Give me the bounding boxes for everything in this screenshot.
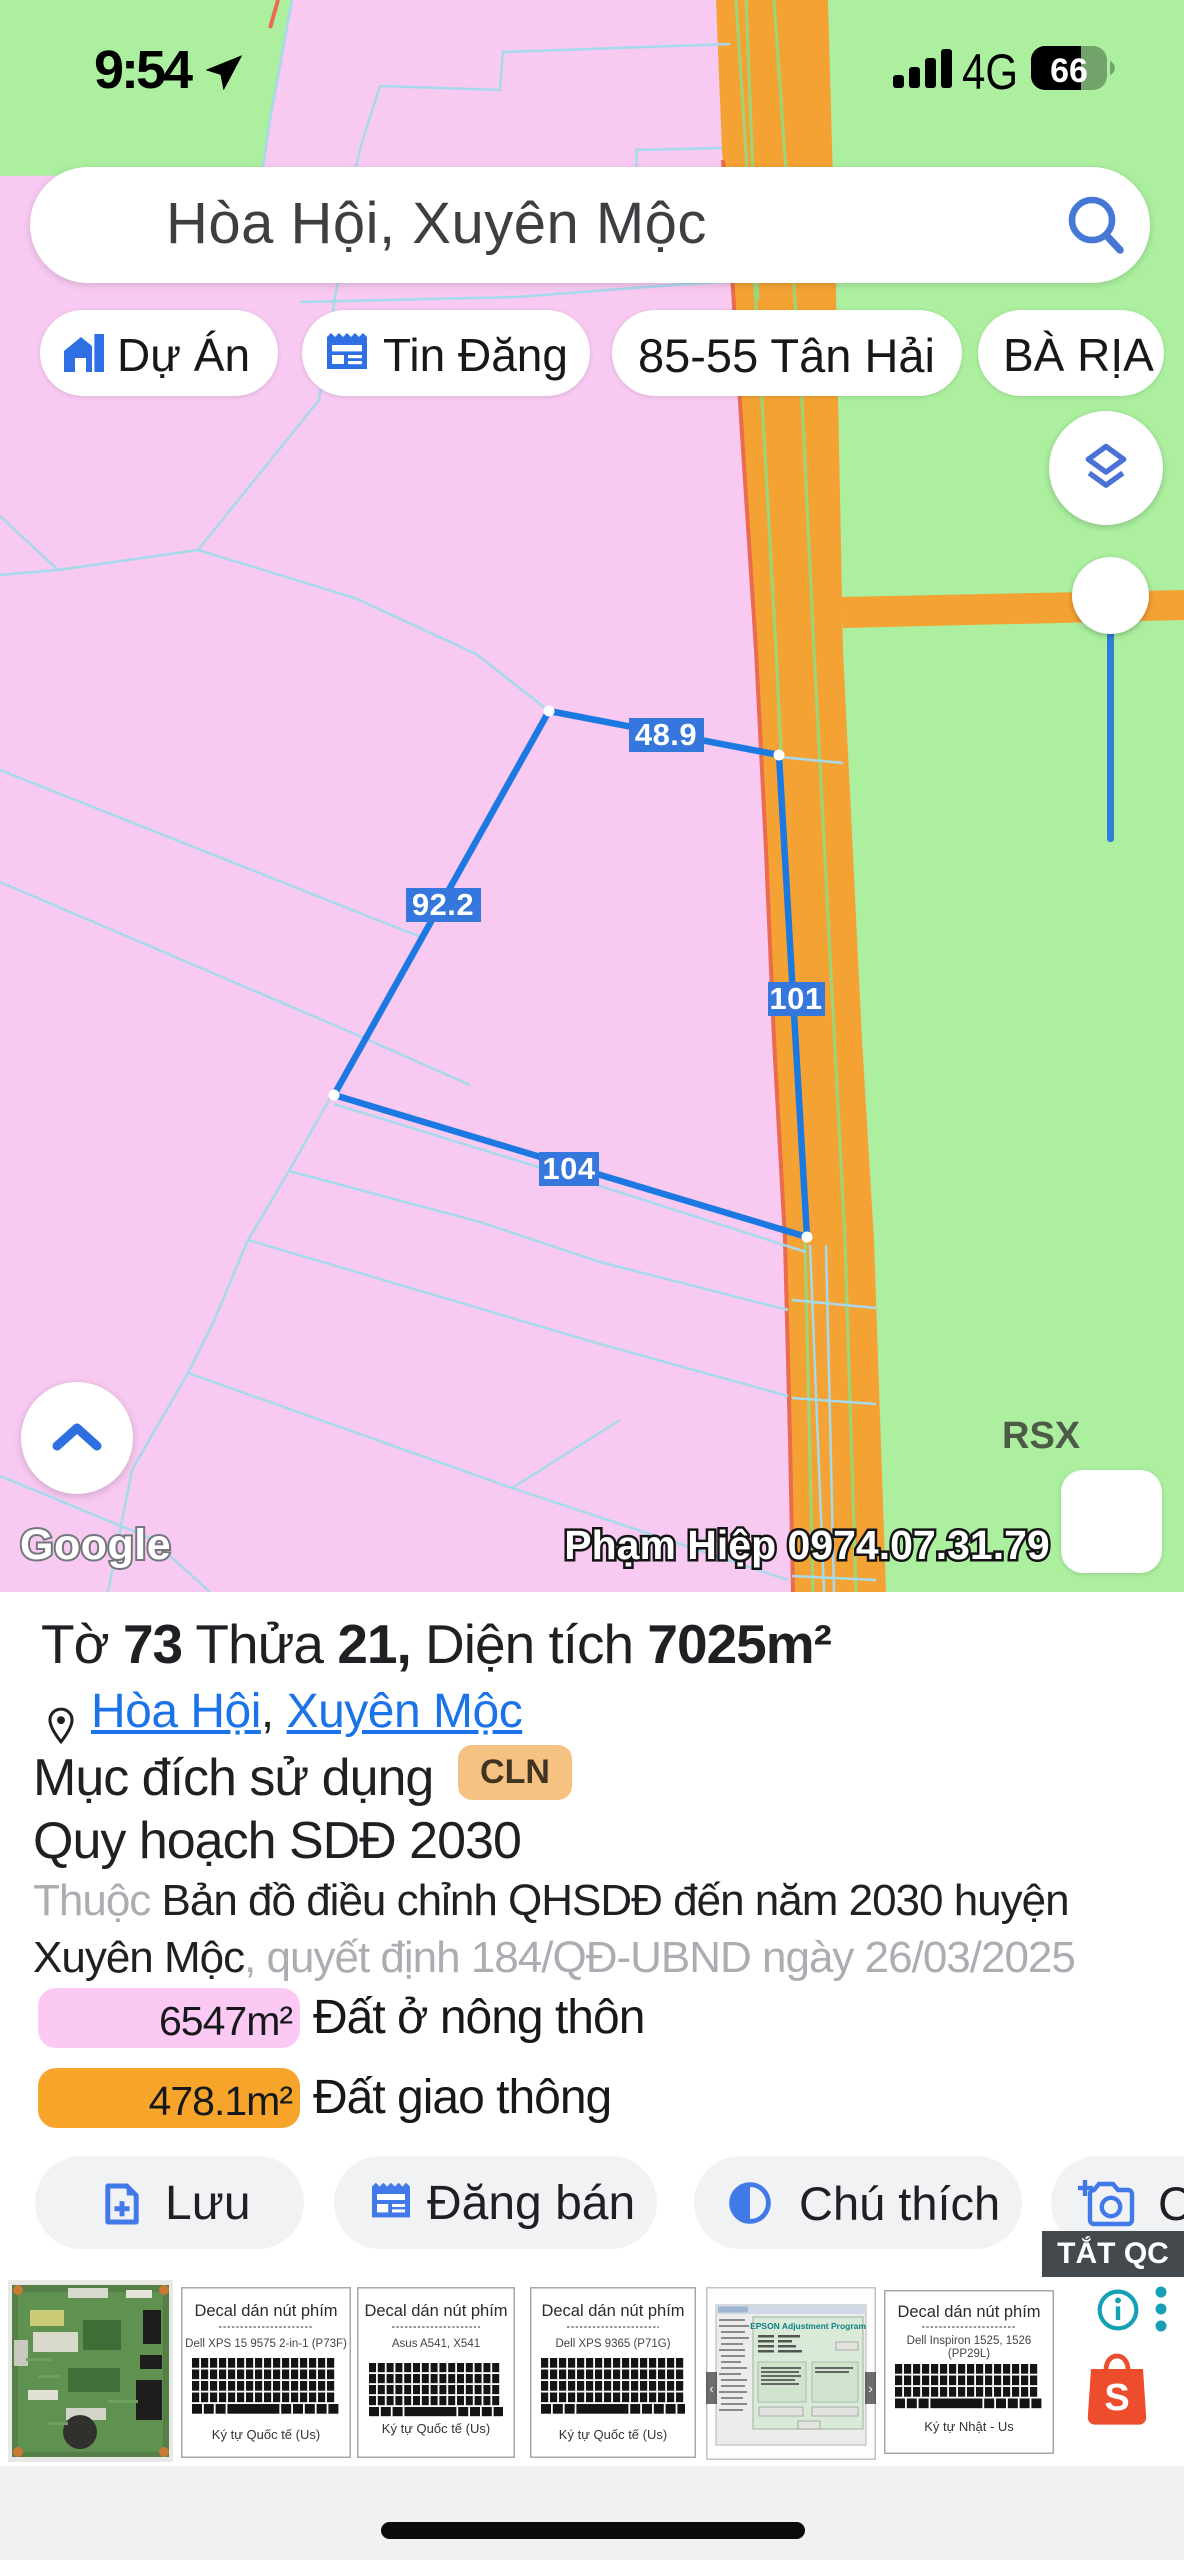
svg-text:‹: ‹ bbox=[709, 2381, 713, 2396]
svg-text:101: 101 bbox=[769, 981, 822, 1016]
svg-text:›: › bbox=[868, 2381, 872, 2396]
svg-text:Phạm Hiệp 0974.07.31.79: Phạm Hiệp 0974.07.31.79 bbox=[564, 1522, 1049, 1568]
svg-text:Decal dán nút phím: Decal dán nút phím bbox=[541, 2302, 684, 2320]
svg-text:92.2: 92.2 bbox=[412, 887, 474, 922]
svg-text:S: S bbox=[1104, 2377, 1129, 2419]
svg-text:Ký tự Quốc tế (Us): Ký tự Quốc tế (Us) bbox=[212, 2427, 320, 2442]
svg-text:Google: Google bbox=[20, 1521, 171, 1569]
svg-text:Ký tự Nhật - Us: Ký tự Nhật - Us bbox=[924, 2419, 1014, 2434]
svg-text:104: 104 bbox=[542, 1151, 595, 1186]
svg-text:Dell Inspiron 1525, 1526: Dell Inspiron 1525, 1526 bbox=[907, 2335, 1032, 2347]
svg-text:48.9: 48.9 bbox=[635, 717, 697, 752]
svg-text:RSX: RSX bbox=[1002, 1415, 1081, 1457]
svg-text:Decal dán nút phím: Decal dán nút phím bbox=[194, 2302, 337, 2320]
svg-text:4G: 4G bbox=[962, 44, 1018, 94]
svg-text:Decal dán nút phím: Decal dán nút phím bbox=[897, 2303, 1040, 2321]
svg-text:Ký tự Quốc tế (Us): Ký tự Quốc tế (Us) bbox=[559, 2427, 667, 2442]
svg-text:EPSON Adjustment Program: EPSON Adjustment Program bbox=[750, 2321, 866, 2331]
svg-text:66: 66 bbox=[1050, 52, 1088, 90]
svg-text:Decal dán nút phím: Decal dán nút phím bbox=[364, 2302, 507, 2320]
svg-text:Dell XPS 15 9575 2-in-1 (P73F): Dell XPS 15 9575 2-in-1 (P73F) bbox=[185, 2338, 347, 2350]
svg-text:(PP29L): (PP29L) bbox=[948, 2348, 990, 2360]
svg-text:Ký tự Quốc tế (Us): Ký tự Quốc tế (Us) bbox=[382, 2421, 490, 2436]
svg-text:Asus A541, X541: Asus A541, X541 bbox=[392, 2338, 480, 2350]
svg-text:Dell XPS 9365 (P71G): Dell XPS 9365 (P71G) bbox=[555, 2338, 670, 2350]
